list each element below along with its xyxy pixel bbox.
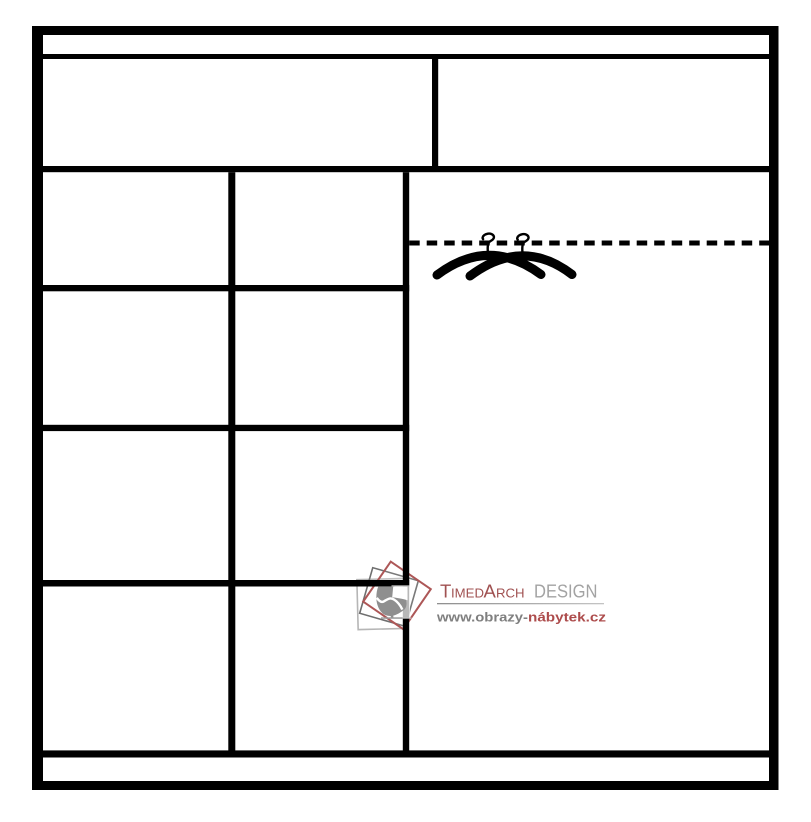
svg-text:www.obrazy-: www.obrazy- [436,610,528,625]
svg-text:T: T [440,580,451,601]
svg-text:IMED: IMED [451,585,484,600]
svg-text:RCH: RCH [496,585,525,600]
svg-text:nábytek.cz: nábytek.cz [528,610,606,625]
svg-text:DESIGN: DESIGN [534,580,598,601]
svg-text:A: A [484,580,497,601]
